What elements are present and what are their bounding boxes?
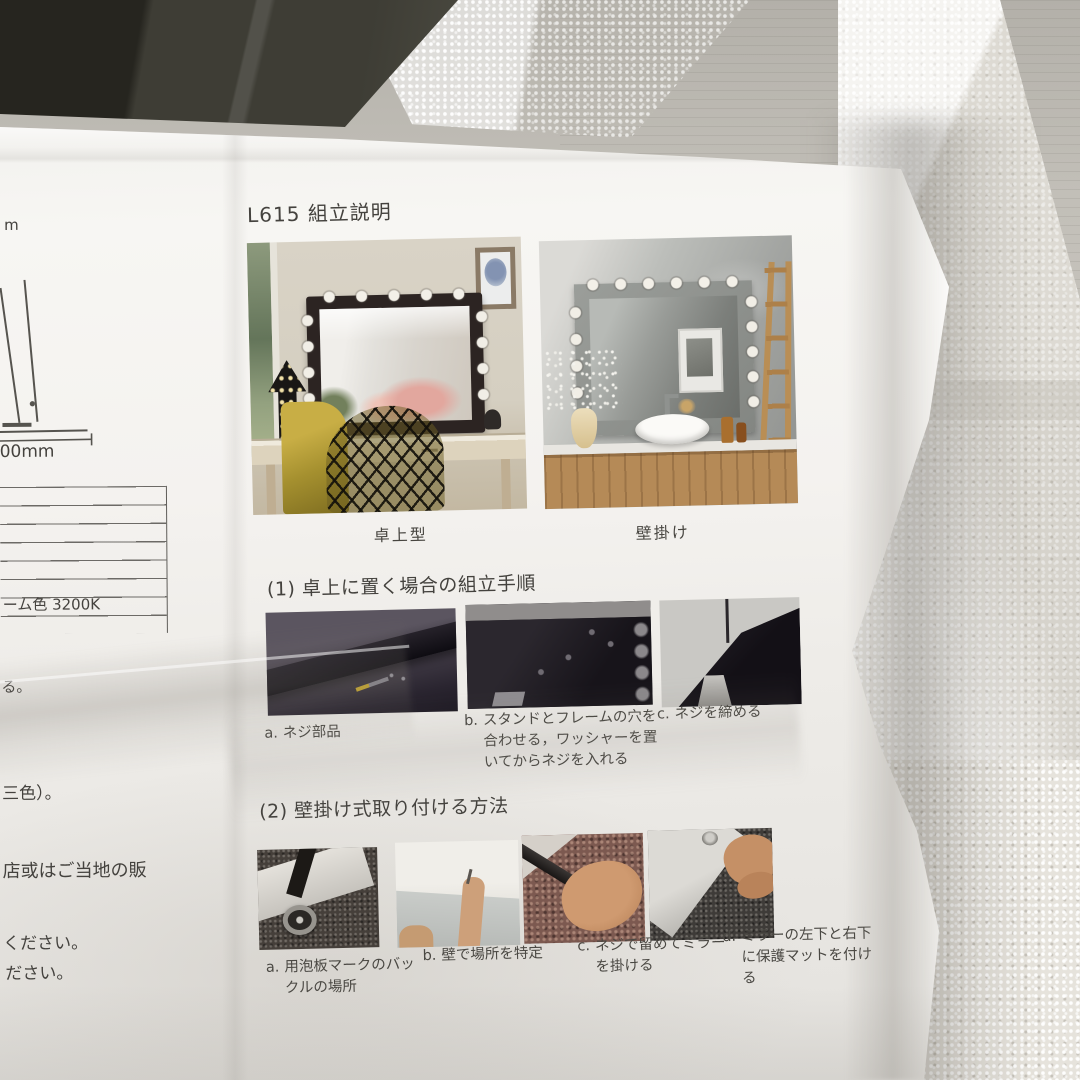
step-letter: c.	[577, 936, 591, 978]
hand	[399, 925, 434, 948]
step-text: 壁で場所を特定	[441, 943, 571, 967]
faucet-spout	[664, 394, 678, 398]
step-letter: b.	[422, 946, 436, 967]
step-photo-mark-wall	[395, 840, 520, 948]
manual-title: L615 組立説明	[247, 196, 392, 228]
photo-scene: m 00mm ーム色 3200K る。 三色）。 店或はご当地の販 ください。 …	[0, 0, 1080, 1080]
window	[247, 242, 282, 457]
step-caption: c. ネジで留めてミラーを掛ける	[577, 933, 730, 979]
screwdriver	[725, 599, 729, 643]
reflected-lamp	[677, 399, 695, 414]
bathroom-photo	[539, 235, 798, 509]
bedroom-photo	[247, 237, 527, 515]
hand	[555, 853, 646, 938]
type-caption-wallmount: 壁掛け	[635, 519, 690, 544]
packaging-dark-panel	[0, 0, 458, 132]
bulb-row-right	[473, 304, 491, 408]
desk-clock	[484, 409, 501, 429]
type-caption-tabletop: 卓上型	[373, 521, 428, 546]
bulb-row-left	[299, 308, 317, 412]
bottom-shadow	[0, 985, 945, 1080]
step-photo-fasten-screw	[522, 833, 646, 944]
step-photo-protective-mat	[648, 828, 775, 941]
bulb-row-top	[579, 273, 747, 293]
step-letter: d.	[722, 927, 737, 990]
vanity-cabinet	[544, 449, 798, 509]
reflected-art	[686, 338, 713, 377]
table-leg	[266, 464, 276, 514]
reflected-picture	[678, 328, 723, 393]
babys-breath-flowers	[543, 347, 623, 415]
mirror-edge-band	[257, 847, 374, 922]
flower-vase	[571, 408, 598, 449]
bulb-row-top	[313, 286, 475, 306]
amber-bottle	[721, 417, 734, 443]
wire-chair	[281, 399, 446, 515]
step-caption: b. 壁で場所を特定	[422, 943, 571, 968]
section1-heading: (1) 卓上に置く場合の組立手順	[267, 568, 537, 601]
metal-buckle-ring	[282, 905, 317, 936]
panel-highlight	[130, 0, 360, 132]
vertical-crease	[222, 130, 248, 1080]
amber-bottle	[736, 422, 746, 442]
step-photo-buckle-location	[257, 847, 379, 950]
bulb-row-right	[743, 289, 762, 414]
vessel-sink	[635, 413, 710, 445]
art-flowers	[484, 258, 507, 287]
table-leg	[501, 459, 511, 509]
step-text: ネジで留めてミラーを掛ける	[595, 933, 730, 978]
